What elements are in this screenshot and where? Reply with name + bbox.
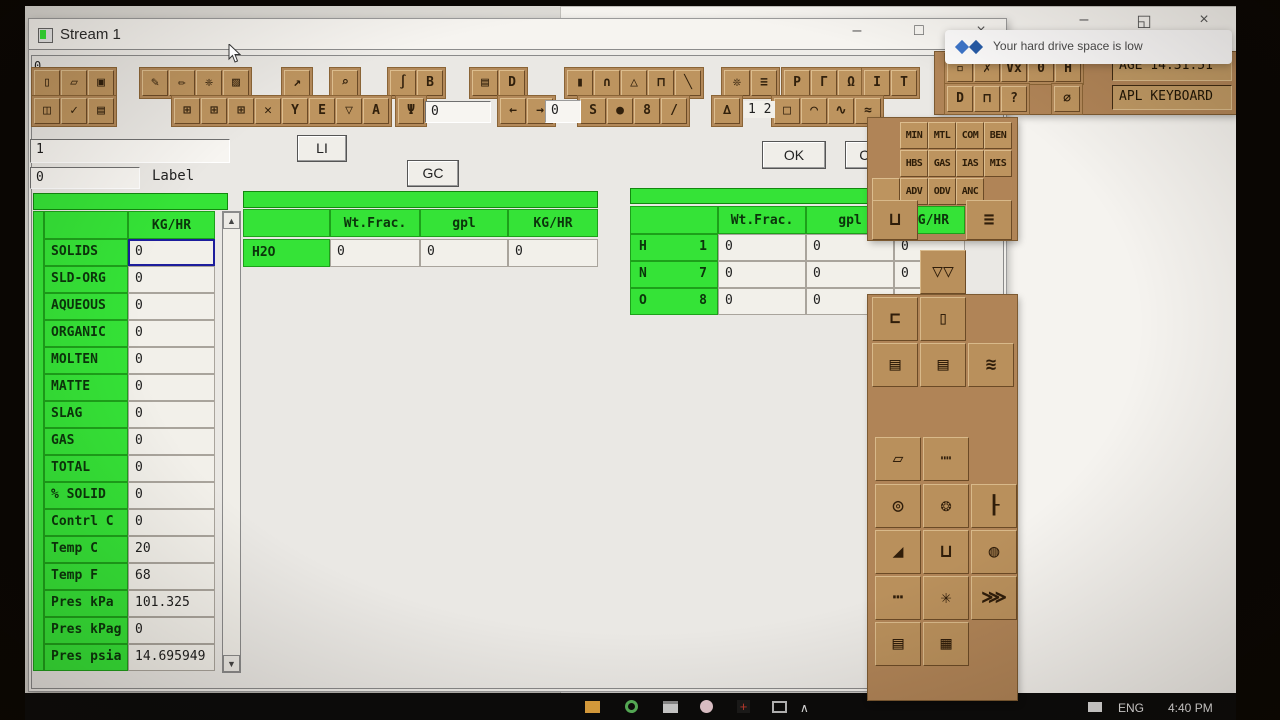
curve-tool-icon[interactable]: ◠ [801, 98, 827, 124]
tray-expand-icon[interactable]: ∧ [800, 701, 809, 715]
element-value-cell[interactable]: 0 [718, 288, 806, 315]
palette-button-ben[interactable]: BEN [984, 122, 1012, 149]
open-folder-icon[interactable]: ▱ [61, 70, 87, 96]
new-file-icon[interactable]: ▯ [34, 70, 60, 96]
li-button[interactable]: LI [297, 135, 347, 162]
toolbar-band-value: 0 [545, 100, 581, 123]
calculator-dark-icon[interactable]: ● [607, 98, 633, 124]
belt-feeder-icon[interactable]: ┅ [875, 576, 921, 620]
phase-label: Pres kPa [44, 590, 128, 617]
filter-press-icon[interactable]: ▦ [923, 622, 969, 666]
back-close-button[interactable]: × [1191, 11, 1217, 31]
element-number: 1 [699, 239, 707, 260]
browser-icon[interactable] [625, 700, 638, 713]
element-header-blank [630, 206, 718, 234]
phase-value-input[interactable]: 0 [128, 347, 215, 374]
help-tool-icon[interactable]: ? [1001, 86, 1027, 112]
phase-value-input[interactable]: 0 [128, 293, 215, 320]
phase-value-input[interactable]: 14.695949 [128, 644, 215, 671]
element-number: 7 [699, 266, 707, 287]
toolbar-group-print: ▤D [470, 68, 527, 98]
palette-button-ias[interactable]: IAS [956, 150, 984, 177]
phase-table-row: MOLTEN0 [44, 347, 215, 374]
phase-label: Pres psia [44, 644, 128, 671]
section-tool-icon[interactable]: ∫ [390, 70, 416, 96]
phase-table-row: GAS0 [44, 428, 215, 455]
grid-tool-icon-3[interactable]: ⊞ [228, 98, 254, 124]
grid-tool-icon-2[interactable]: ⊞ [201, 98, 227, 124]
phase-value-input[interactable]: 0 [128, 509, 215, 536]
screw-conveyor-icon[interactable]: ⋙ [971, 576, 1017, 620]
back-minimize-button[interactable]: – [1071, 11, 1097, 31]
curve-tool-icon-2[interactable]: ∿ [828, 98, 854, 124]
phase-label: MATTE [44, 374, 128, 401]
mill-icon[interactable]: ▤ [920, 343, 966, 387]
toolbar-group-check: ◫✓▤ [32, 96, 116, 126]
disable-tool-icon[interactable]: ∅ [1054, 86, 1080, 112]
phase-table-row: Temp F68 [44, 563, 215, 590]
window-app-icon[interactable] [663, 701, 678, 713]
p-doc-tool-icon[interactable]: P [784, 70, 810, 96]
toolbar-counter: 1 2 [744, 101, 775, 118]
stream-window-icon [38, 28, 53, 43]
crusher-icon[interactable]: ⊏ [872, 297, 918, 341]
phase-table-row: Contrl C0 [44, 509, 215, 536]
toolbar-group-disable: ∅ [1052, 84, 1082, 114]
active-window-icon[interactable] [772, 701, 787, 713]
palette-button-min[interactable]: MIN [900, 122, 928, 149]
streams-list-icon[interactable]: ≡ [966, 200, 1012, 240]
phase-label: Pres kPag [44, 617, 128, 644]
settings-tool-icon[interactable]: ❈ [196, 70, 222, 96]
phase-value-input[interactable]: 0 [128, 239, 215, 266]
phase-label: SOLIDS [44, 239, 128, 266]
toolbar-group-text: IT [862, 68, 919, 98]
phase-value-input[interactable]: 0 [128, 266, 215, 293]
phase-label: Temp F [44, 563, 128, 590]
toolbar-group-star: ❊≡ [722, 68, 779, 98]
tray-keyboard-icon[interactable] [1088, 702, 1102, 712]
maximize-button[interactable]: □ [906, 22, 932, 40]
square-tool-icon[interactable]: □ [774, 98, 800, 124]
component-table-titlebar [243, 191, 598, 208]
calculator-8-icon[interactable]: 8 [634, 98, 660, 124]
phase-label: Temp C [44, 536, 128, 563]
phase-table: SOLIDS0SLD-ORG0AQUEOUS0ORGANIC0MOLTEN0MA… [44, 239, 215, 671]
label-input[interactable]: 0 [30, 167, 140, 189]
pipe-tool-icon[interactable]: Γ [811, 70, 837, 96]
launder-icon[interactable]: ⊔ [923, 530, 969, 574]
text-a-tool-icon[interactable]: A [363, 98, 389, 124]
toolbar-group-arrow: ↗ [282, 68, 312, 98]
taskbar: + ∧ ENG 4:40 PM [0, 693, 1280, 720]
phase-table-row: SLD-ORG0 [44, 266, 215, 293]
grid-tool-icon[interactable]: ⊞ [174, 98, 200, 124]
phase-table-row: Pres kPa101.325 [44, 590, 215, 617]
toolbar-group-section: ∫B [388, 68, 445, 98]
column-icon[interactable]: ┠ [971, 484, 1017, 528]
phase-table-row: ORGANIC0 [44, 320, 215, 347]
phase-table-scrollbar[interactable]: ▲ ▼ [222, 211, 241, 673]
bezel-right [1236, 0, 1280, 720]
element-number: 8 [699, 293, 707, 314]
taskbar-language[interactable]: ENG [1118, 701, 1144, 715]
phase-label: Contrl C [44, 509, 128, 536]
phase-value-input[interactable]: 68 [128, 563, 215, 590]
mouse-cursor [228, 44, 242, 64]
phase-label: SLAG [44, 401, 128, 428]
palette-button-odv[interactable]: ODV [928, 178, 956, 205]
element-symbol: O [639, 293, 647, 314]
phase-table-row: Temp C20 [44, 536, 215, 563]
screen-icon[interactable]: ▽▽ [920, 250, 966, 294]
element-value-cell[interactable]: 0 [718, 261, 806, 288]
triangle-tool-icon[interactable]: △ [621, 70, 647, 96]
toolbar-group-units: ▮∩△⊓╲ [565, 68, 703, 98]
phase-label: MOLTEN [44, 347, 128, 374]
phase-value-input[interactable]: 0 [128, 617, 215, 644]
toolbar-input[interactable]: 0 [425, 101, 491, 123]
metsim-app-icon[interactable]: + [737, 700, 750, 713]
drive-alert-icon [955, 40, 969, 54]
phase-value-input[interactable]: 0 [128, 428, 215, 455]
element-value-cell[interactable]: 0 [718, 234, 806, 261]
stream-number-input[interactable]: 1 [30, 139, 230, 163]
taskbar-clock[interactable]: 4:40 PM [1168, 701, 1213, 715]
phase-table-margin [33, 211, 44, 671]
heat-exchanger-icon[interactable]: ≋ [968, 343, 1014, 387]
phase-value-input[interactable]: 0 [128, 374, 215, 401]
palette-button-hbs[interactable]: HBS [900, 150, 928, 177]
ok-button[interactable]: OK [762, 141, 826, 169]
furnace-tool-icon[interactable]: ∩ [594, 70, 620, 96]
folder-icon[interactable] [585, 701, 600, 713]
vessel-icon[interactable]: ⊔ [872, 200, 918, 240]
component-value-cell[interactable]: 0 [508, 239, 598, 267]
palette-button-mtl[interactable]: MTL [928, 122, 956, 149]
phase-value-input[interactable]: 0 [128, 455, 215, 482]
element-header-wtfrac: Wt.Frac. [718, 206, 806, 234]
shape-tool-icon[interactable]: D [499, 70, 525, 96]
dark-doc-icon[interactable]: ▮ [567, 70, 593, 96]
press-tool-icon[interactable]: ⊓ [648, 70, 674, 96]
ball-mill-icon[interactable]: ◍ [971, 530, 1017, 574]
edit-box-tool-icon[interactable]: ▨ [223, 70, 249, 96]
phase-value-input[interactable]: 0 [128, 320, 215, 347]
columns-tool-icon[interactable]: ◫ [34, 98, 60, 124]
valve-tool-icon[interactable]: Ω [838, 70, 864, 96]
app-circle-icon[interactable] [700, 700, 713, 713]
scales-tool-icon[interactable]: ∆ [714, 98, 740, 124]
phase-header-kghr: KG/HR [128, 211, 215, 239]
flotation-cell-icon[interactable]: ▱ [875, 437, 921, 481]
phase-table-row: Pres psia14.695949 [44, 644, 215, 671]
scrollbar-up-icon[interactable]: ▲ [223, 212, 240, 229]
toolbar-group-calculators: S●8/ [578, 96, 689, 126]
save-icon[interactable]: ▣ [88, 70, 114, 96]
component-header-wtfrac: Wt.Frac. [330, 209, 420, 237]
check-tool-icon[interactable]: ✓ [61, 98, 87, 124]
star-tool-icon[interactable]: ❊ [724, 70, 750, 96]
e-doc-tool-icon[interactable]: E [309, 98, 335, 124]
phase-value-input[interactable]: 0 [128, 401, 215, 428]
flowsheet-tool-icon[interactable]: ✎ [142, 70, 168, 96]
component-row-label: H2O [243, 239, 330, 267]
drive-alert-icon [969, 40, 983, 54]
label-caption: Label [152, 168, 194, 184]
component-value-cell[interactable]: 0 [420, 239, 508, 267]
element-value-cell[interactable]: 0 [806, 261, 894, 288]
bezel-top [0, 0, 1280, 6]
phase-label: % SOLID [44, 482, 128, 509]
conveyor-icon[interactable]: ┉ [923, 437, 969, 481]
filter-press-icon[interactable]: ▤ [875, 622, 921, 666]
phase-value-input[interactable]: 0 [128, 482, 215, 509]
calculator-slash-icon[interactable]: / [661, 98, 687, 124]
dde-tool-icon[interactable]: D [947, 86, 973, 112]
toolbar-group-grids: ⊞⊞⊞✕YE▽A [172, 96, 391, 126]
element-row-label: N 7 [630, 261, 718, 288]
tank-icon[interactable]: ▯ [920, 297, 966, 341]
phase-header-blank [44, 211, 128, 239]
toolbar-group-tools: ✎✏❈▨ [140, 68, 251, 98]
element-row-label: O 8 [630, 288, 718, 315]
toolbar-group-curves: □◠∿≈ [772, 96, 883, 126]
mill-icon[interactable]: ▤ [872, 343, 918, 387]
back-restore-button[interactable]: ◱ [1131, 11, 1157, 31]
phase-label: GAS [44, 428, 128, 455]
stream-window-title: Stream 1 [60, 26, 121, 43]
element-symbol: N [639, 266, 647, 287]
funnel-tool-icon[interactable]: Y [282, 98, 308, 124]
grinding-mill-icon[interactable]: ❂ [923, 484, 969, 528]
print-preview-icon[interactable]: ▤ [472, 70, 498, 96]
bezel-left [0, 0, 25, 720]
component-value-cell[interactable]: 0 [330, 239, 420, 267]
stream-titlebar[interactable]: Stream 1 – □ × [29, 19, 1006, 50]
report-tool-icon[interactable]: B [417, 70, 443, 96]
component-header-kghr: KG/HR [508, 209, 598, 237]
phase-table-row: Pres kPag0 [44, 617, 215, 644]
sampler-tool-icon[interactable]: Ψ [398, 98, 424, 124]
lock-tool-icon[interactable]: ⊓ [974, 86, 1000, 112]
notification-text: Your hard drive space is low [993, 39, 1143, 53]
phase-value-input[interactable]: 20 [128, 536, 215, 563]
palette-button-mis[interactable]: MIS [984, 150, 1012, 177]
toolbar-group-scales: ∆ [712, 96, 742, 126]
text-tool-icon[interactable]: T [891, 70, 917, 96]
element-row-label: H 1 [630, 234, 718, 261]
zoom-tool-icon[interactable]: ⌕ [332, 70, 358, 96]
filter-tool-icon[interactable]: ▽ [336, 98, 362, 124]
phase-label: ORGANIC [44, 320, 128, 347]
arrow-left-icon[interactable]: ← [500, 98, 526, 124]
ibeam-tool-icon[interactable]: I [864, 70, 890, 96]
component-header-blank [243, 209, 330, 237]
phase-table-row: % SOLID0 [44, 482, 215, 509]
keyboard-status-box: APL KEYBOARD [1112, 85, 1232, 110]
draw-tool-icon[interactable]: ✏ [169, 70, 195, 96]
toolbar-group-zoom: ⌕ [330, 68, 360, 98]
phase-table-row: AQUEOUS0 [44, 293, 215, 320]
stairs-icon[interactable]: ◢ [875, 530, 921, 574]
phase-label: AQUEOUS [44, 293, 128, 320]
phase-label: SLD-ORG [44, 266, 128, 293]
phase-table-row: MATTE0 [44, 374, 215, 401]
mixer-icon[interactable]: ✳ [923, 576, 969, 620]
phase-table-row: TOTAL0 [44, 455, 215, 482]
gc-button[interactable]: GC [407, 160, 459, 187]
toolbar-group-sampler: Ψ [396, 96, 426, 126]
palette-button-com[interactable]: COM [956, 122, 984, 149]
delete-tool-icon[interactable]: ✕ [255, 98, 281, 124]
phase-table-row: SLAG0 [44, 401, 215, 428]
element-symbol: H [639, 239, 647, 260]
phase-table-row: SOLIDS0 [44, 239, 215, 266]
arrow-tool-icon[interactable]: ↗ [284, 70, 310, 96]
scrollbar-down-icon[interactable]: ▼ [223, 655, 240, 672]
toolbar-group-dde: D⊓? [945, 84, 1029, 114]
print-icon[interactable]: ▤ [88, 98, 114, 124]
toolbar-group-pipe: PΓΩ [782, 68, 866, 98]
minimize-button[interactable]: – [844, 22, 870, 40]
toolbar-group-file: ▯▱▣ [32, 68, 116, 98]
palette-button-gas[interactable]: GAS [928, 150, 956, 177]
phase-value-input[interactable]: 101.325 [128, 590, 215, 617]
assign-tool-icon[interactable]: ≡ [751, 70, 777, 96]
component-header-gpl: gpl [420, 209, 508, 237]
phase-table-titlebar [33, 193, 228, 210]
calculator-s-icon[interactable]: S [580, 98, 606, 124]
notification-toast[interactable]: Your hard drive space is low [945, 30, 1232, 64]
phase-label: TOTAL [44, 455, 128, 482]
pump-icon[interactable]: ◎ [875, 484, 921, 528]
line-tool-icon[interactable]: ╲ [675, 70, 701, 96]
